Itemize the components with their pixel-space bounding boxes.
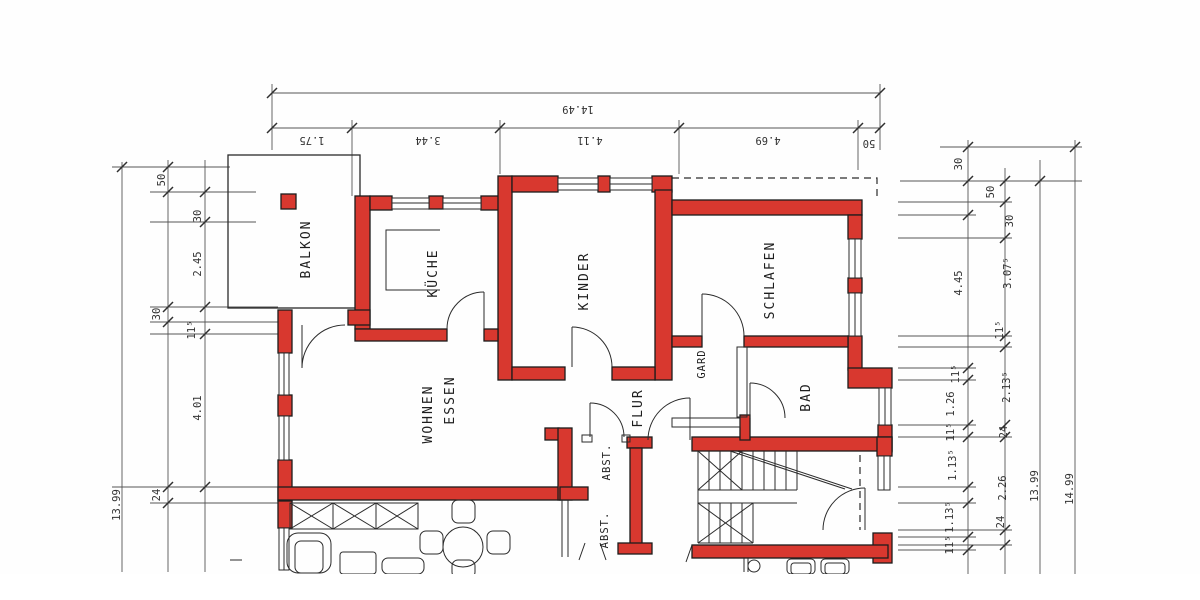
- wall-stair-south: [692, 545, 888, 558]
- wall-kinder-schlafen: [655, 190, 672, 380]
- wall-segment: [618, 543, 652, 554]
- wall-segment: [484, 329, 498, 341]
- wall-kinder-bottom: [512, 367, 565, 380]
- dim-left-seg-5: 11⁵: [186, 321, 198, 340]
- wall-wohnen-south: [278, 487, 560, 500]
- dim-left-seg-4: 30: [151, 308, 163, 321]
- door-bad: [750, 383, 785, 418]
- dim-right-inner-3: 11⁵: [950, 365, 962, 384]
- windows: [279, 178, 891, 570]
- wall-segment: [348, 310, 370, 325]
- dim-top-overall: 14.49: [562, 103, 594, 115]
- wall-segment: [370, 196, 392, 210]
- wall-segment: [481, 196, 500, 210]
- wall-west: [278, 310, 292, 353]
- wall-segment: [512, 176, 558, 192]
- wall-schlafen-top: [672, 200, 862, 215]
- floor-plan-page: 14.49 1.75 3.44 4.11 4.69 50 13.99: [0, 0, 1200, 600]
- wall-schlafen-bottom: [744, 336, 848, 347]
- dim-left-seg-3: 2.45: [192, 251, 204, 276]
- furniture: [287, 230, 510, 578]
- dining-set: [420, 500, 510, 578]
- wall-kueche-bottom: [355, 329, 447, 341]
- wall-segment: [848, 215, 862, 239]
- dim-top-seg-1: 1.75: [299, 134, 324, 146]
- room-label-flur: FLUR: [631, 388, 646, 427]
- dim-right-inner-4: 1.26: [945, 391, 957, 416]
- dining-table: [443, 527, 483, 567]
- coffee-table: [340, 552, 376, 574]
- dim-right-mid-4: 11⁵: [994, 321, 1006, 340]
- room-label-abst2: ABST.: [599, 512, 611, 549]
- wall-flur-spine: [630, 448, 642, 545]
- dim-left-seg-2: 30: [192, 210, 204, 223]
- room-label-wohnen: WOHNEN: [421, 385, 436, 444]
- wall-bad-step: [848, 368, 892, 388]
- dim-top-seg-2: 3.44: [415, 134, 440, 146]
- wall-stair-north: [692, 437, 892, 451]
- dim-top-seg-5: 50: [863, 137, 876, 149]
- dimensions-right: 30 4.45 11⁵ 1.26 11⁵ 1.13⁵ 1.13⁵ 11⁵ 50 …: [898, 140, 1082, 575]
- wall-segment: [877, 437, 892, 456]
- room-label-kinder: KINDER: [577, 252, 592, 311]
- wall-bad-pier: [740, 415, 750, 440]
- dim-right-inner-2: 4.45: [953, 270, 965, 295]
- door-entrance: [648, 398, 690, 440]
- sofa-group: [287, 533, 424, 574]
- wall-segment: [560, 487, 588, 500]
- dim-left-seg-1: 50: [156, 174, 168, 187]
- room-label-essen: ESSEN: [443, 375, 458, 424]
- dim-right-mid-2: 30: [1004, 215, 1016, 228]
- dim-top-seg-4: 4.69: [755, 134, 780, 146]
- scan-edge-mask: [0, 574, 1200, 600]
- basin-round: [748, 560, 760, 572]
- dim-right-inner-8: 11⁵: [944, 536, 956, 555]
- dim-right-mid-7: 2.26: [997, 475, 1009, 500]
- dim-right-inner-7: 1.13⁵: [944, 501, 956, 533]
- wall-kinder-left: [498, 176, 512, 380]
- wall-segment: [429, 196, 443, 209]
- balcony: [228, 155, 360, 308]
- balcony-outline: [228, 155, 360, 308]
- door-kinder: [572, 327, 612, 367]
- exterior-walls: [278, 176, 892, 563]
- wall-west-pier: [278, 395, 292, 416]
- door-kueche: [447, 292, 484, 329]
- dim-right-total-outer: 14.99: [1064, 473, 1076, 505]
- door-abst1: [590, 403, 624, 437]
- dim-right-inner-1: 30: [953, 158, 965, 171]
- roof-dashed-line: [672, 178, 877, 200]
- dim-right-mid-6: 24: [998, 426, 1010, 439]
- dimensions-left: 13.99 50 30 2.45 30 11⁵ 4.01 24: [111, 160, 278, 572]
- dim-right-mid-5: 2.13⁵: [1001, 371, 1013, 403]
- dim-right-inner-6: 1.13⁵: [947, 449, 959, 481]
- sideboard: [290, 503, 418, 529]
- wall-segment: [672, 336, 702, 347]
- dim-left-seg-7: 24: [151, 489, 163, 502]
- dim-left-seg-6: 4.01: [192, 395, 204, 420]
- window-stairwell: [878, 456, 890, 490]
- stair-run-line: [737, 451, 852, 489]
- wall-segment: [612, 367, 655, 380]
- door-stairhall: [823, 455, 865, 530]
- wall-gard-bottom: [672, 418, 740, 427]
- wall-segment: [545, 428, 559, 440]
- room-label-schlafen: SCHLAFEN: [763, 241, 778, 320]
- room-label-gard: GARD: [696, 349, 708, 378]
- floor-plan-svg: 14.49 1.75 3.44 4.11 4.69 50 13.99: [0, 0, 1200, 600]
- dim-right-mid-8: 24: [995, 516, 1007, 529]
- wall-gard-bad: [737, 347, 747, 417]
- dim-right-mid-3: 3.07⁵: [1002, 257, 1014, 289]
- room-label-balkon: BALKON: [299, 220, 314, 279]
- room-label-kueche: KÜCHE: [424, 248, 441, 297]
- room-label-abst1: ABST.: [601, 444, 613, 481]
- door-balkon: [302, 325, 345, 368]
- wall-kueche-left: [355, 196, 370, 329]
- stair-run-line: [730, 451, 845, 489]
- dim-top-seg-3: 4.11: [577, 134, 602, 146]
- wall-segment: [598, 176, 610, 192]
- dim-right-inner-5: 11⁵: [945, 423, 957, 442]
- wall-segment: [848, 336, 862, 370]
- door-schlafen: [702, 294, 744, 336]
- dim-left-overall: 13.99: [111, 489, 123, 521]
- window-bad: [879, 388, 891, 425]
- room-label-bad: BAD: [799, 382, 814, 411]
- wall-segment: [848, 278, 862, 293]
- staircase: [698, 451, 852, 543]
- armchair: [287, 533, 331, 573]
- dim-right-total-inner: 13.99: [1029, 470, 1041, 502]
- fixtures: [744, 558, 849, 574]
- sofa: [382, 558, 424, 574]
- balcony-pillar: [281, 194, 296, 209]
- dim-right-mid-1: 50: [985, 186, 997, 199]
